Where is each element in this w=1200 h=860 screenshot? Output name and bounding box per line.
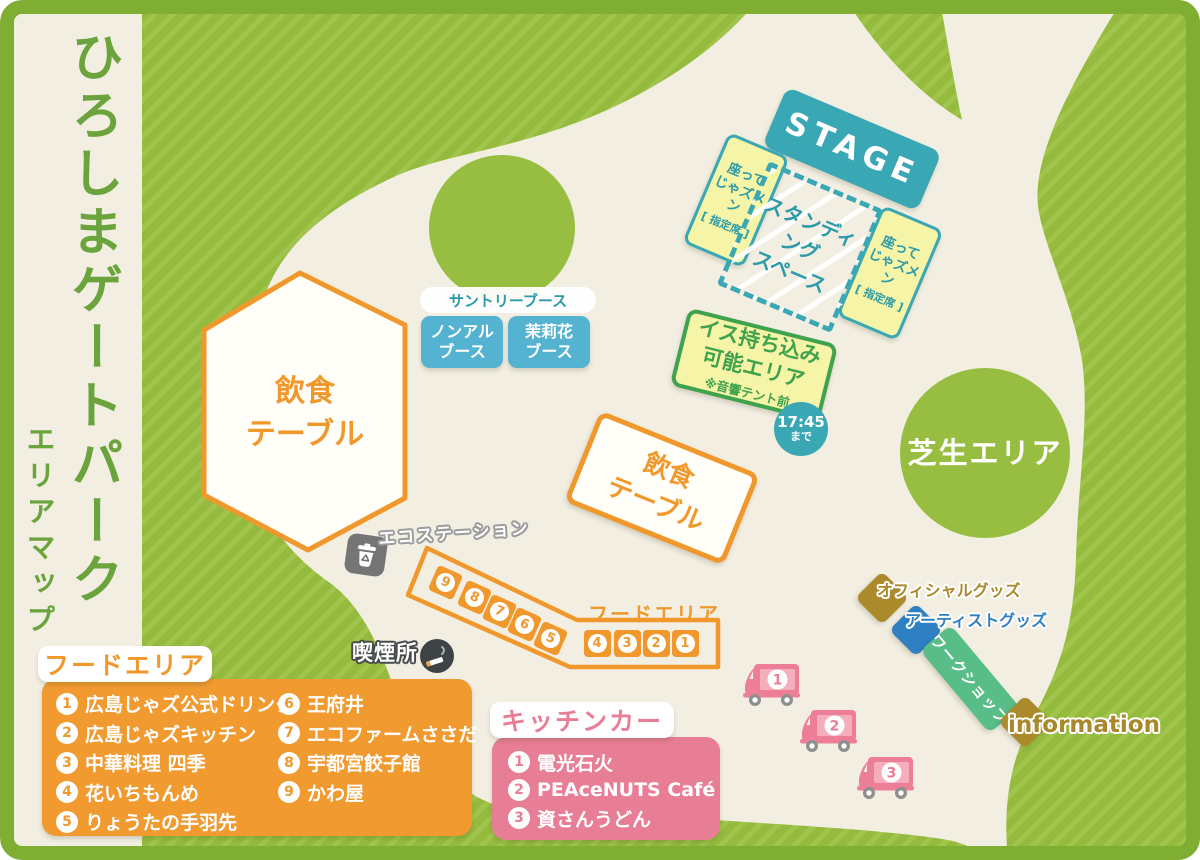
legend-item-number: 7 <box>278 722 300 744</box>
truck-icon: 3 <box>854 754 918 800</box>
svg-text:1: 1 <box>773 673 783 689</box>
legend-item-name: 広島じゃズキッチン <box>85 720 256 747</box>
smoking-area-icon-box <box>420 639 454 673</box>
food-stall-4: 4 <box>584 630 611 657</box>
information-label: information <box>1008 712 1160 738</box>
legend-item-5: 5りょうたの手羽先 <box>56 807 294 837</box>
legend-item-3: 3資さんうどん <box>508 804 715 832</box>
legend-item-number: 4 <box>56 781 78 803</box>
legend-item-name: エコファームささだ <box>307 720 477 747</box>
green-circle-small <box>429 155 575 301</box>
food-stall-number: 4 <box>588 634 607 653</box>
legend-item-name: 王府井 <box>307 690 364 717</box>
kitchen-truck-1: 1 <box>740 661 804 711</box>
food-legend-col1: 1広島じゃズ公式ドリンク2広島じゃズキッチン3中華料理 四季4花いちもんめ5りょ… <box>56 689 294 837</box>
dining-table-hex-label: 飲食 テーブル <box>225 368 385 458</box>
legend-item-3: 3中華料理 四季 <box>56 748 294 778</box>
booth1-line2: ブース <box>438 342 485 362</box>
legend-item-name: 花いちもんめ <box>85 779 199 806</box>
cigarette-icon <box>423 642 451 670</box>
legend-item-name: 宇都宮餃子館 <box>307 749 421 776</box>
trash-bin-icon <box>352 540 379 569</box>
food-stall-number: 3 <box>618 634 637 653</box>
official-goods-label: オフィシャルグッズ <box>877 577 1021 601</box>
food-stall-3: 3 <box>614 630 641 657</box>
food-legend-title-tab: フードエリア <box>38 646 212 682</box>
legend-item-8: 8宇都宮餃子館 <box>278 748 477 778</box>
smoking-area-label: 喫煙所 <box>352 637 418 667</box>
food-stall-number: 9 <box>432 569 457 594</box>
food-stall-number: 1 <box>676 634 695 653</box>
legend-item-6: 6王府井 <box>278 689 477 719</box>
kitchen-truck-2: 2 <box>797 707 861 757</box>
legend-item-number: 3 <box>56 752 78 774</box>
dining-hex-line2: テーブル <box>246 413 364 457</box>
legend-item-number: 2 <box>56 722 78 744</box>
food-legend-col2: 6王府井7エコファームささだ8宇都宮餃子館9かわ屋 <box>278 689 477 807</box>
legend-item-number: 5 <box>56 811 78 833</box>
lawn-area-label: 芝生エリア <box>900 423 1070 483</box>
legend-item-4: 4花いちもんめ <box>56 778 294 808</box>
kitchen-legend-title-tab: キッチンカー <box>490 702 674 738</box>
legend-item-2: 2広島じゃズキッチン <box>56 719 294 749</box>
time-badge-time: 17:45 <box>777 414 825 431</box>
legend-item-number: 1 <box>508 751 530 773</box>
legend-item-number: 6 <box>278 693 300 715</box>
legend-item-number: 3 <box>508 807 530 829</box>
legend-item-name: りょうたの手羽先 <box>85 808 237 835</box>
legend-item-name: かわ屋 <box>307 779 364 806</box>
area-map: ひろしまゲートパーク エリアマップ STAGE 座って じゃズメン [ 指定席 … <box>0 0 1200 860</box>
food-stall-number: 8 <box>461 584 486 609</box>
legend-item-name: 広島じゃズ公式ドリンク <box>85 690 294 717</box>
truck-icon: 2 <box>797 707 861 753</box>
legend-item-1: 1電光石火 <box>508 748 715 776</box>
non-alcohol-booth: ノンアル ブース <box>421 316 503 368</box>
booth2-line1: 茉莉花 <box>525 322 573 342</box>
kitchen-truck-3: 3 <box>854 754 918 804</box>
time-badge-suffix: まで <box>790 431 812 444</box>
legend-item-number: 2 <box>508 779 530 801</box>
truck-icon: 1 <box>740 661 804 707</box>
legend-item-name: 中華料理 四季 <box>85 749 206 776</box>
legend-item-7: 7エコファームささだ <box>278 719 477 749</box>
lawn-label-text: 芝生エリア <box>907 432 1062 474</box>
green-leaf-top <box>846 0 962 120</box>
dining-hex-line1: 飲食 <box>275 370 335 414</box>
kitchen-legend-title: キッチンカー <box>501 702 663 738</box>
time-badge: 17:45 まで <box>774 402 828 456</box>
legend-item-name: 資さんうどん <box>537 805 651 832</box>
svg-text:2: 2 <box>830 719 840 735</box>
food-stall-number: 7 <box>486 598 511 623</box>
legend-item-number: 1 <box>56 693 78 715</box>
legend-item-1: 1広島じゃズ公式ドリンク <box>56 689 294 719</box>
booth2-line2: ブース <box>525 342 572 362</box>
suntory-booth-title: サントリーブース <box>420 287 596 313</box>
booth1-line1: ノンアル <box>430 322 494 342</box>
food-area-map-label: フードエリア <box>588 598 720 627</box>
legend-item-name: 電光石火 <box>537 749 613 776</box>
legend-item-9: 9かわ屋 <box>278 778 477 808</box>
suntory-title-label: サントリーブース <box>449 290 567 311</box>
food-legend-title: フードエリア <box>44 646 206 682</box>
legend-item-2: 2PEAceNUTS Café <box>508 776 715 804</box>
food-stall-number: 2 <box>647 634 666 653</box>
artist-goods-label: アーティストグッズ <box>905 607 1047 631</box>
food-stall-1: 1 <box>672 630 699 657</box>
legend-item-number: 8 <box>278 752 300 774</box>
food-stall-number: 5 <box>537 625 562 650</box>
svg-text:3: 3 <box>887 766 897 782</box>
food-stall-number: 6 <box>511 611 536 636</box>
page-title: ひろしまゲートパーク <box>66 30 118 610</box>
page-subtitle: エリアマップ <box>24 424 53 640</box>
food-stall-2: 2 <box>643 630 670 657</box>
legend-item-number: 9 <box>278 781 300 803</box>
kitchen-legend-items: 1電光石火2PEAceNUTS Café3資さんうどん <box>508 748 715 832</box>
legend-item-name: PEAceNUTS Café <box>537 779 715 801</box>
jasmine-booth: 茉莉花 ブース <box>508 316 590 368</box>
